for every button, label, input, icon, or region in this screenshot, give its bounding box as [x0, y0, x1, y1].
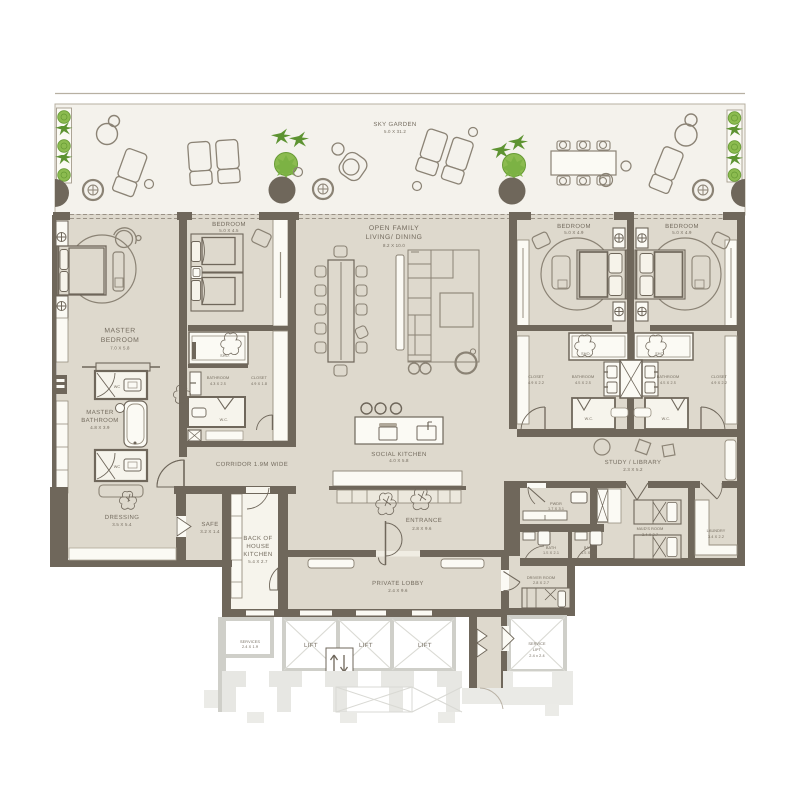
svg-text:7.0 X 5.8: 7.0 X 5.8 — [110, 346, 130, 351]
svg-text:LAUNDRY: LAUNDRY — [707, 529, 726, 533]
svg-text:CLOSET: CLOSET — [251, 376, 267, 380]
svg-text:4.5 X 2.5: 4.5 X 2.5 — [575, 381, 591, 385]
svg-text:OPEN FAMILY: OPEN FAMILY — [369, 225, 419, 232]
svg-text:BEDROOM: BEDROOM — [665, 223, 699, 230]
svg-text:2.8 X 2.7: 2.8 X 2.7 — [533, 581, 549, 585]
svg-text:SAFE: SAFE — [201, 521, 218, 528]
svg-text:5.0 X 4.5: 5.0 X 4.5 — [219, 228, 239, 233]
svg-text:SERVICE: SERVICE — [528, 642, 546, 646]
svg-text:4.5 X 2.5: 4.5 X 2.5 — [660, 381, 676, 385]
svg-text:PWDR: PWDR — [550, 502, 562, 506]
svg-text:2.4 x 2.4: 2.4 x 2.4 — [529, 654, 544, 658]
svg-text:MASTER: MASTER — [86, 409, 114, 416]
svg-text:LIFT: LIFT — [304, 642, 318, 649]
svg-text:SHO.: SHO. — [220, 354, 230, 358]
svg-text:2.8 X 9.6: 2.8 X 9.6 — [412, 526, 432, 531]
svg-text:LIFT: LIFT — [418, 642, 432, 649]
svg-text:HOUSE: HOUSE — [246, 543, 269, 550]
svg-text:W.C.: W.C. — [662, 417, 671, 421]
svg-text:BATH: BATH — [584, 546, 594, 550]
svg-text:2.4 X 1.9: 2.4 X 1.9 — [242, 645, 258, 649]
svg-text:4.9 X 2.2: 4.9 X 2.2 — [528, 381, 544, 385]
svg-text:CORRIDOR 1.9M WIDE: CORRIDOR 1.9M WIDE — [216, 461, 288, 468]
svg-text:BATHROOM: BATHROOM — [572, 375, 594, 379]
svg-text:BATHROOM: BATHROOM — [81, 417, 118, 424]
svg-text:2.4 X 9.6: 2.4 X 9.6 — [388, 588, 408, 593]
svg-text:4.3 X 2.5: 4.3 X 2.5 — [210, 382, 226, 386]
svg-text:SHO.: SHO. — [655, 352, 665, 356]
svg-text:SKY GARDEN: SKY GARDEN — [373, 121, 416, 128]
svg-text:4.9 X 2.2: 4.9 X 2.2 — [711, 381, 727, 385]
svg-text:1.7 X 3.1: 1.7 X 3.1 — [548, 507, 564, 511]
svg-text:W.C.: W.C. — [220, 418, 229, 422]
svg-text:DRESSING: DRESSING — [105, 514, 140, 521]
svg-text:PRIVATE LOBBY: PRIVATE LOBBY — [372, 580, 424, 587]
svg-text:5.4 X 2.7: 5.4 X 2.7 — [248, 559, 268, 564]
svg-text:LIFT: LIFT — [533, 648, 542, 652]
svg-text:MAID'S ROOM: MAID'S ROOM — [637, 527, 664, 531]
svg-text:LIVING/ DINING: LIVING/ DINING — [366, 234, 423, 241]
svg-text:STUDY / LIBRARY: STUDY / LIBRARY — [605, 459, 662, 466]
svg-text:3.5 X 5.4: 3.5 X 5.4 — [112, 522, 132, 527]
svg-text:BATH: BATH — [546, 546, 556, 550]
svg-text:SOCIAL KITCHEN: SOCIAL KITCHEN — [371, 451, 426, 458]
svg-text:LIFT: LIFT — [359, 642, 373, 649]
svg-text:WC: WC — [114, 385, 121, 389]
svg-text:3.4 X 2.7: 3.4 X 2.7 — [642, 533, 658, 537]
svg-text:BEDROOM: BEDROOM — [101, 337, 140, 344]
svg-text:1.5 X 2.1: 1.5 X 2.1 — [543, 551, 559, 555]
svg-text:BEDROOM: BEDROOM — [212, 221, 246, 228]
svg-text:2.3 X 5.2: 2.3 X 5.2 — [623, 467, 643, 472]
svg-text:4.8 X 3.9: 4.8 X 3.9 — [90, 425, 110, 430]
svg-text:8.2 X 10.0: 8.2 X 10.0 — [383, 243, 405, 248]
svg-text:MASTER: MASTER — [104, 328, 135, 335]
svg-text:SERVICES: SERVICES — [240, 640, 260, 644]
svg-text:W.C.: W.C. — [585, 417, 594, 421]
svg-text:ENTRANCE: ENTRANCE — [406, 517, 442, 524]
svg-text:BATHROOM: BATHROOM — [657, 375, 679, 379]
svg-text:4.0 X 5.8: 4.0 X 5.8 — [389, 458, 409, 463]
svg-text:WC: WC — [114, 465, 121, 469]
svg-text:BATHROOM: BATHROOM — [207, 376, 229, 380]
svg-text:CLOSET: CLOSET — [528, 375, 544, 379]
svg-text:5.0 X 4.9: 5.0 X 4.9 — [672, 230, 692, 235]
svg-text:3.4 X 2.2: 3.4 X 2.2 — [708, 535, 724, 539]
svg-text:BEDROOM: BEDROOM — [557, 223, 591, 230]
svg-text:CLOSET: CLOSET — [711, 375, 727, 379]
svg-text:3.2 X 1.4: 3.2 X 1.4 — [200, 529, 220, 534]
svg-text:1.5 X 2.1: 1.5 X 2.1 — [581, 551, 597, 555]
svg-text:KITCHEN: KITCHEN — [243, 551, 272, 558]
svg-text:4.9 X 1.8: 4.9 X 1.8 — [251, 382, 267, 386]
svg-text:5.0 X 4.9: 5.0 X 4.9 — [564, 230, 584, 235]
svg-text:DRIVER ROOM: DRIVER ROOM — [527, 576, 555, 580]
svg-text:BACK OF: BACK OF — [243, 535, 272, 542]
svg-text:5.0 X 31.2: 5.0 X 31.2 — [384, 129, 406, 134]
svg-text:SHO.: SHO. — [581, 352, 591, 356]
